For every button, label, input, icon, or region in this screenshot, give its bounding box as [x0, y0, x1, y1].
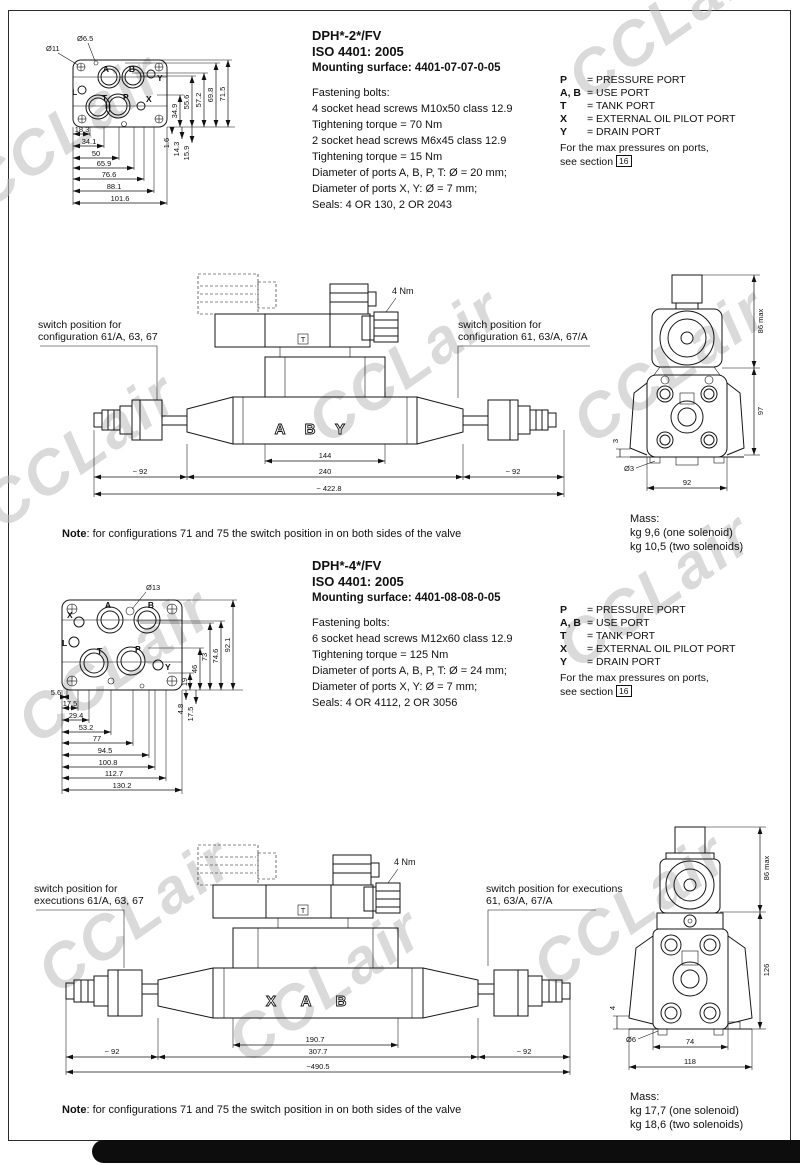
mounting-surface-drawing-dph4: A B X L T P Y Ø13 5.6 17.5 29.4 53.2 77 …	[28, 578, 283, 808]
dim-label: 14.3	[172, 142, 181, 157]
section1-header: DPH*-2*/FV ISO 4401: 2005 Mounting surfa…	[312, 28, 562, 213]
dim-label: 92.1	[223, 638, 232, 653]
iso-standard: ISO 4401: 2005	[312, 574, 562, 590]
switch-position-left-line1: switch position for	[38, 319, 122, 331]
max-pressure-line1: For the max pressures on ports,	[560, 672, 709, 684]
mass-one-solenoid: kg 17,7 (one solenoid)	[630, 1104, 743, 1118]
spec-line: 2 socket head screws M6x45 class 12.9	[312, 133, 562, 149]
mounting-surface-drawing-dph2: A B Y L T P X Ø11 Ø6.5 18.3 34.1 50 65.9…	[20, 15, 290, 220]
dim-label: 19	[180, 678, 189, 686]
body-letter: B	[305, 421, 316, 438]
spec-line: Diameter of ports A, B, P, T: Ø = 24 mm;	[312, 663, 562, 679]
port-desc: = USE PORT	[587, 87, 650, 99]
spec-line: Fastening bolts:	[312, 615, 562, 631]
note-label: Note	[62, 1104, 86, 1116]
hole-callout: Ø3	[624, 464, 634, 473]
legend-row: X= EXTERNAL OIL PILOT PORT	[560, 113, 770, 126]
mass-label: Mass:	[630, 512, 743, 526]
dim-label: 53.2	[79, 723, 94, 732]
spec-line: Diameter of ports X, Y: Ø = 7 mm;	[312, 181, 562, 197]
spec-line: Fastening bolts:	[312, 85, 562, 101]
note-dph2: Note: for configurations 71 and 75 the s…	[62, 528, 461, 540]
port-desc: = TANK PORT	[587, 630, 655, 642]
spec-line: Tightening torque = 70 Nm	[312, 117, 562, 133]
dim-label: 5.6	[51, 688, 61, 697]
spec-line: Diameter of ports X, Y: Ø = 7 mm;	[312, 679, 562, 695]
mass-two-solenoids: kg 10,5 (two solenoids)	[630, 540, 743, 554]
port-key: Y	[560, 656, 587, 669]
datasheet-page: CCLair CCLair CCLair CCLair CCLair CCLai…	[0, 0, 800, 1165]
legend-row: P= PRESSURE PORT	[560, 74, 770, 87]
t-mark: T	[301, 335, 306, 344]
port-desc: = PRESSURE PORT	[587, 74, 686, 86]
port-desc: = DRAIN PORT	[587, 126, 661, 138]
switch-position-left-line2: configuration 61/A, 63, 67	[38, 331, 158, 343]
port-key: X	[560, 643, 587, 656]
port-label-a: A	[103, 64, 109, 74]
port-label-b: B	[148, 600, 154, 610]
dim-label: ~490.5	[306, 1062, 329, 1071]
port-label-a: A	[105, 600, 111, 610]
mounting-surface: Mounting surface: 4401-07-07-0-05	[312, 60, 562, 76]
switch-position-right-line2: configuration 61, 63/A, 67/A	[458, 331, 588, 343]
dim-label: 15.9	[182, 146, 191, 161]
max-pressure-line1: For the max pressures on ports,	[560, 142, 709, 154]
switch-position-right-line1: switch position for	[458, 319, 542, 331]
dim-label: 86 max	[762, 855, 771, 880]
max-pressure-line2: see section	[560, 686, 613, 698]
dim-label: 100.8	[99, 758, 118, 767]
dim-label: 46	[190, 665, 199, 673]
dim-label: 4.8	[176, 704, 185, 714]
torque-label: 4 Nm	[392, 286, 414, 296]
legend-row: A, B= USE PORT	[560, 87, 770, 100]
dim-label: 88.1	[107, 182, 122, 191]
mounting-surface: Mounting surface: 4401-08-08-0-05	[312, 590, 562, 606]
body-letter: X	[266, 993, 276, 1010]
legend-row: X= EXTERNAL OIL PILOT PORT	[560, 643, 770, 656]
hole-callout-d13: Ø13	[146, 583, 160, 592]
dim-label: 1.6	[162, 138, 171, 148]
max-pressure-note: For the max pressures on ports, see sect…	[560, 672, 770, 699]
port-desc: = PRESSURE PORT	[587, 604, 686, 616]
max-pressure-line2: see section	[560, 156, 613, 168]
hole-callout-d65: Ø6.5	[77, 34, 93, 43]
port-key: A, B	[560, 617, 587, 630]
mass-block-dph2: Mass: kg 9,6 (one solenoid) kg 10,5 (two…	[630, 512, 743, 554]
port-desc: = TANK PORT	[587, 100, 655, 112]
spec-line: Seals: 4 OR 4112, 2 OR 3056	[312, 695, 562, 711]
spec-line: Diameter of ports A, B, P, T: Ø = 20 mm;	[312, 165, 562, 181]
port-key: P	[560, 74, 587, 87]
port-desc: = EXTERNAL OIL PILOT PORT	[587, 643, 736, 655]
hole-callout-d11: Ø11	[46, 44, 60, 53]
dim-label: 86 max	[756, 308, 765, 333]
dim-label: ~ 92	[506, 467, 521, 476]
dim-label: ~ 92	[133, 467, 148, 476]
dim-label: 71.5	[218, 87, 227, 102]
dim-label: 50	[92, 149, 100, 158]
max-pressure-note: For the max pressures on ports, see sect…	[560, 142, 770, 169]
port-label-y: Y	[157, 73, 163, 83]
dim-label: 97	[756, 407, 765, 415]
hole-callout: Ø6	[626, 1035, 636, 1044]
port-label-l: L	[62, 638, 67, 648]
body-letter: A	[301, 993, 312, 1010]
dim-label: 118	[684, 1057, 696, 1066]
switch-position-right-line1: switch position for executions	[486, 883, 623, 895]
dim-label: 77	[93, 734, 101, 743]
dim-label: 17.5	[186, 707, 195, 722]
legend-row: A, B= USE PORT	[560, 617, 770, 630]
note-text: : for configurations 71 and 75 the switc…	[86, 1104, 461, 1116]
switch-position-right-line2: 61, 63/A, 67/A	[486, 895, 553, 907]
port-key: X	[560, 113, 587, 126]
section2-header: DPH*-4*/FV ISO 4401: 2005 Mounting surfa…	[312, 558, 562, 711]
port-label-b: B	[129, 64, 135, 74]
dim-label: 240	[319, 467, 332, 476]
dim-label: 130.2	[113, 781, 132, 790]
spec-line: Tightening torque = 15 Nm	[312, 149, 562, 165]
port-desc: = EXTERNAL OIL PILOT PORT	[587, 113, 736, 125]
spec-line: 4 socket head screws M10x50 class 12.9	[312, 101, 562, 117]
dim-label: 76.6	[102, 170, 117, 179]
port-key: T	[560, 100, 587, 113]
switch-position-left-line2: executions 61/A, 63, 67	[34, 895, 144, 907]
port-desc: = USE PORT	[587, 617, 650, 629]
note-label: Note	[62, 528, 86, 540]
switch-position-left-line1: switch position for	[34, 883, 118, 895]
dim-label: 65.9	[97, 159, 112, 168]
port-label-x: X	[67, 610, 73, 620]
legend-row: P= PRESSURE PORT	[560, 604, 770, 617]
dim-label: 29.4	[69, 711, 84, 720]
torque-label: 4 Nm	[394, 857, 416, 867]
port-label-t: T	[102, 93, 108, 103]
t-mark: T	[301, 906, 306, 915]
mass-block-dph4: Mass: kg 17,7 (one solenoid) kg 18,6 (tw…	[630, 1090, 743, 1132]
dim-label: 74	[686, 1037, 694, 1046]
dim-label: 144	[319, 451, 332, 460]
mass-one-solenoid: kg 9,6 (one solenoid)	[630, 526, 743, 540]
dim-label: 307.7	[309, 1047, 328, 1056]
spec-list: Fastening bolts: 4 socket head screws M1…	[312, 85, 562, 213]
spec-line: 6 socket head screws M12x60 class 12.9	[312, 631, 562, 647]
note-text: : for configurations 71 and 75 the switc…	[86, 528, 461, 540]
legend-row: T= TANK PORT	[560, 630, 770, 643]
dim-label: 94.5	[98, 746, 113, 755]
dim-label: 55.6	[182, 95, 191, 110]
body-letter: A	[275, 421, 286, 438]
model-title: DPH*-4*/FV	[312, 558, 562, 574]
port-label-t: T	[97, 646, 103, 656]
port-key: Y	[560, 126, 587, 139]
dim-label: ~ 92	[517, 1047, 532, 1056]
spec-line: Seals: 4 OR 130, 2 OR 2043	[312, 197, 562, 213]
dim-label: 3	[611, 439, 620, 443]
dim-label: 126	[762, 964, 771, 977]
port-label-p: P	[123, 92, 129, 102]
dim-label: ~ 92	[105, 1047, 120, 1056]
port-label-y: Y	[165, 662, 171, 672]
mass-label: Mass:	[630, 1090, 743, 1104]
legend-row: T= TANK PORT	[560, 100, 770, 113]
dim-label: 74.6	[211, 649, 220, 664]
spec-line: Tightening torque = 125 Nm	[312, 647, 562, 663]
valve-assembly-drawing-dph2: switch position for configuration 61/A, …	[30, 262, 630, 512]
port-desc: = DRAIN PORT	[587, 656, 661, 668]
note-dph4: Note: for configurations 71 and 75 the s…	[62, 1104, 461, 1116]
dim-label: 57.2	[194, 93, 203, 108]
body-letter: B	[336, 993, 347, 1010]
dim-label: 73	[200, 653, 209, 661]
end-view-drawing-dph4: 86 max 126 74 118 Ø6 4	[608, 818, 793, 1083]
dim-label: ~ 422.8	[316, 484, 341, 493]
dim-label: 17.5	[63, 699, 78, 708]
dim-label: 69.8	[206, 88, 215, 103]
section-reference: 16	[616, 155, 631, 167]
dim-label: 34.9	[170, 104, 179, 119]
port-label-x: X	[146, 94, 152, 104]
ports-legend: P= PRESSURE PORT A, B= USE PORT T= TANK …	[560, 604, 770, 699]
port-label-p: P	[135, 644, 141, 654]
dim-label: 101.6	[111, 194, 130, 203]
mass-two-solenoids: kg 18,6 (two solenoids)	[630, 1118, 743, 1132]
port-key: T	[560, 630, 587, 643]
port-key: P	[560, 604, 587, 617]
dim-label: 190.7	[306, 1035, 325, 1044]
ports-legend: P= PRESSURE PORT A, B= USE PORT T= TANK …	[560, 74, 770, 169]
dim-label: 112.7	[105, 769, 123, 778]
port-key: A, B	[560, 87, 587, 100]
dim-label: 4	[608, 1006, 617, 1010]
end-view-drawing-dph2: 86 max 97 92 Ø3 3	[612, 263, 787, 508]
dim-label: 18.3	[75, 125, 90, 134]
iso-standard: ISO 4401: 2005	[312, 44, 562, 60]
footer-bar	[92, 1140, 800, 1163]
spec-list: Fastening bolts: 6 socket head screws M1…	[312, 615, 562, 711]
port-label-l: L	[72, 87, 77, 97]
dim-label: 92	[683, 478, 691, 487]
legend-row: Y= DRAIN PORT	[560, 656, 770, 669]
section-reference: 16	[616, 685, 631, 697]
valve-assembly-drawing-dph4: switch position for executions 61/A, 63,…	[28, 828, 628, 1083]
body-letter: Y	[335, 421, 345, 438]
model-title: DPH*-2*/FV	[312, 28, 562, 44]
dim-label: 34.1	[82, 137, 97, 146]
legend-row: Y= DRAIN PORT	[560, 126, 770, 139]
